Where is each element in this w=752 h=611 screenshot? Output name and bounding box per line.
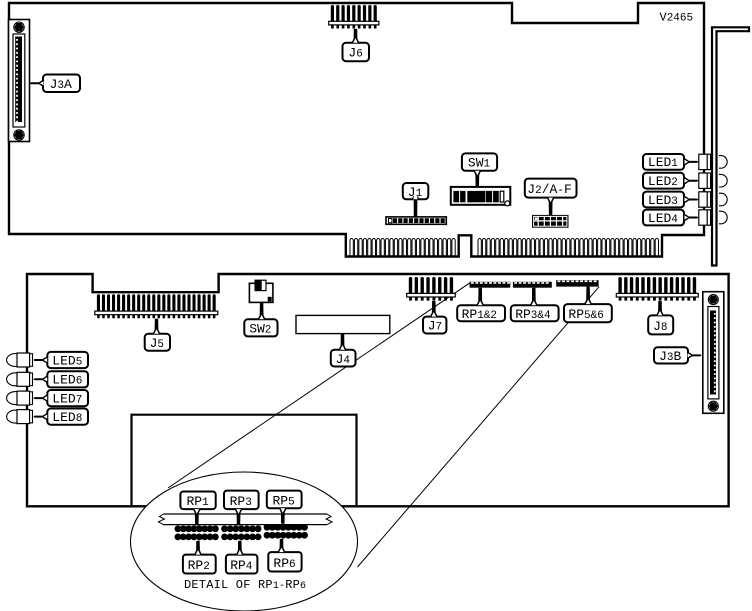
svg-text:LED4: LED4 — [648, 211, 678, 226]
svg-text:RP1: RP1 — [187, 494, 210, 509]
svg-text:V2465: V2465 — [660, 11, 694, 25]
svg-text:J6: J6 — [348, 46, 362, 61]
svg-text:LED5: LED5 — [52, 353, 82, 368]
svg-text:RP4: RP4 — [230, 558, 253, 573]
svg-text:LED1: LED1 — [648, 155, 678, 170]
svg-text:RP3: RP3 — [230, 494, 252, 509]
svg-text:SW2: SW2 — [249, 321, 271, 336]
svg-text:J8: J8 — [653, 319, 667, 334]
svg-text:J5: J5 — [150, 336, 164, 351]
svg-text:SW1: SW1 — [468, 156, 491, 171]
svg-text:RP1&2: RP1&2 — [462, 307, 497, 322]
svg-text:J2/A-F: J2/A-F — [527, 182, 571, 197]
svg-text:J3B: J3B — [659, 349, 681, 364]
svg-text:LED8: LED8 — [52, 410, 82, 425]
svg-text:J7: J7 — [428, 319, 442, 334]
svg-text:LED2: LED2 — [648, 174, 678, 189]
svg-text:LED7: LED7 — [52, 391, 82, 406]
svg-text:LED3: LED3 — [648, 193, 678, 208]
svg-text:RP5: RP5 — [273, 493, 295, 508]
svg-text:J3A: J3A — [50, 77, 72, 92]
svg-text:RP5&6: RP5&6 — [568, 307, 603, 322]
svg-text:RP3&4: RP3&4 — [515, 307, 551, 322]
svg-text:RP2: RP2 — [188, 558, 210, 573]
svg-text:DETAIL OF RP1-RP6: DETAIL OF RP1-RP6 — [184, 578, 306, 592]
svg-text:LED6: LED6 — [52, 373, 82, 388]
svg-text:RP6: RP6 — [273, 556, 295, 571]
svg-text:J4: J4 — [336, 352, 351, 367]
